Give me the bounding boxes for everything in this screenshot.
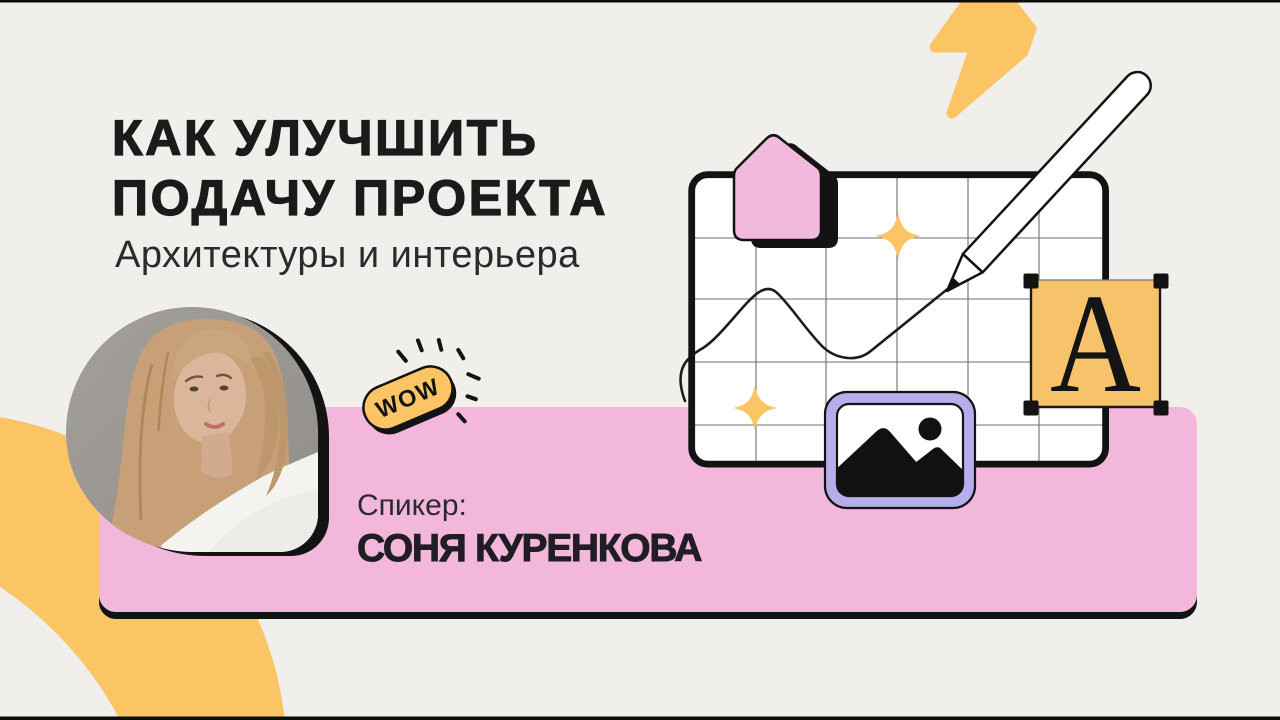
svg-text:A: A xyxy=(1050,265,1141,423)
